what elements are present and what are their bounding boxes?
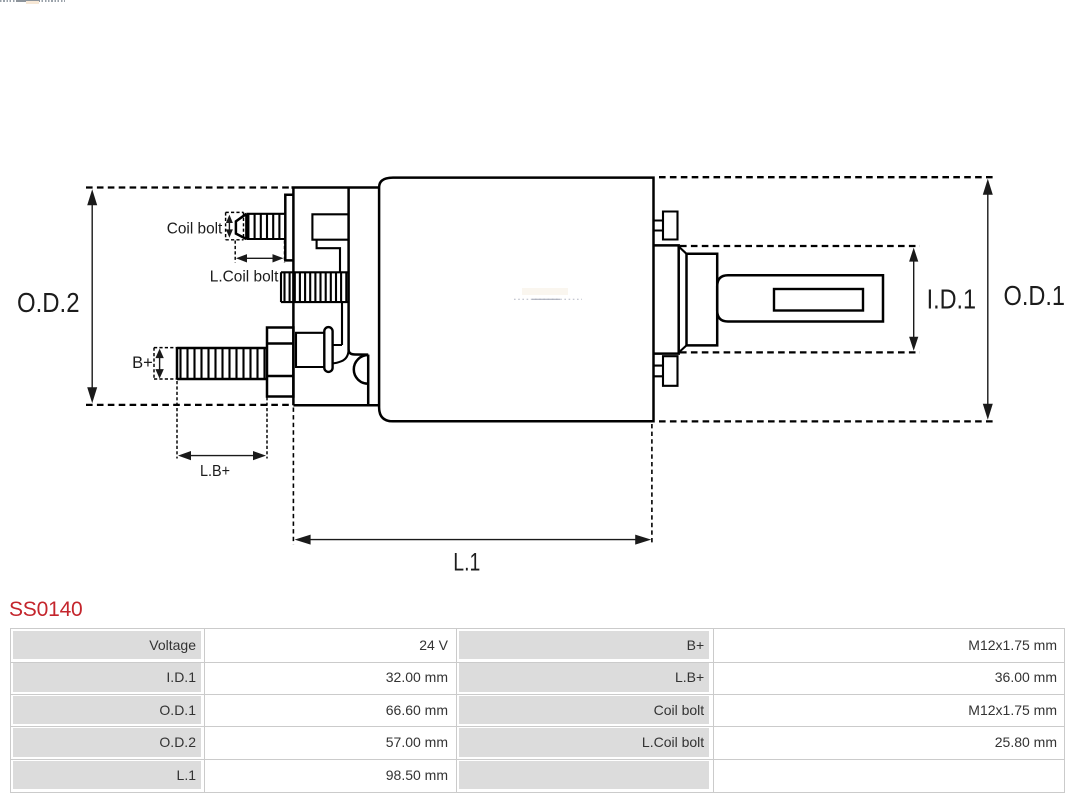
svg-text:L.1: L.1: [453, 549, 480, 577]
svg-text:Coil bolt: Coil bolt: [167, 220, 223, 237]
svg-text:L.B+: L.B+: [200, 463, 230, 480]
svg-text:I.D.1: I.D.1: [927, 284, 977, 315]
svg-text:O.D.2: O.D.2: [17, 287, 80, 318]
svg-text:L.Coil bolt: L.Coil bolt: [210, 268, 279, 285]
svg-text:O.D.1: O.D.1: [1004, 280, 1066, 311]
svg-text:B+: B+: [132, 354, 153, 372]
